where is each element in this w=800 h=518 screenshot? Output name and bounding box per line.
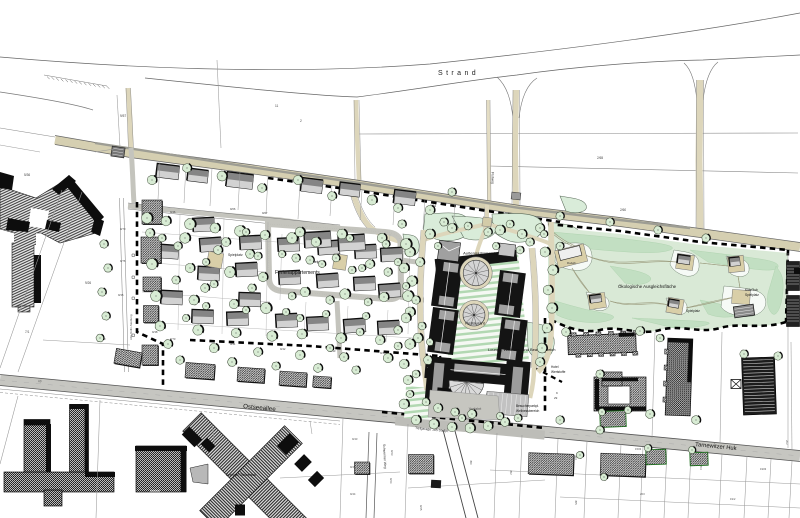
svg-text:19/2: 19/2 xyxy=(730,497,736,501)
svg-text:9/46: 9/46 xyxy=(170,210,176,214)
svg-text:Ferienappartements: Ferienappartements xyxy=(275,270,320,276)
svg-text:9/63: 9/63 xyxy=(390,450,394,456)
svg-text:2/65: 2/65 xyxy=(597,156,603,160)
svg-text:Flutweg: Flutweg xyxy=(491,172,495,184)
svg-text:2: 2 xyxy=(300,119,302,123)
svg-text:Restaurant: Restaurant xyxy=(465,321,485,326)
svg-text:202: 202 xyxy=(785,440,789,445)
svg-text:1503: 1503 xyxy=(635,447,642,451)
svg-text:9/43: 9/43 xyxy=(352,437,358,441)
svg-text:Außengastronomie: Außengastronomie xyxy=(463,251,498,256)
svg-text:9/65: 9/65 xyxy=(419,505,423,511)
svg-text:Ökologische Ausgleichsfläche: Ökologische Ausgleichsfläche xyxy=(618,284,677,289)
svg-text:Rodelb.: Rodelb. xyxy=(567,261,577,265)
svg-text:Spielplatz: Spielplatz xyxy=(745,293,759,297)
svg-text:Wertstoffe: Wertstoffe xyxy=(551,370,566,374)
svg-text:9/44: 9/44 xyxy=(350,492,356,496)
svg-text:455: 455 xyxy=(574,500,578,505)
svg-text:1903: 1903 xyxy=(760,467,767,471)
svg-text:Spielplatz: Spielplatz xyxy=(686,309,700,313)
svg-text:9/57: 9/57 xyxy=(120,114,126,118)
svg-text:5/36: 5/36 xyxy=(24,173,30,177)
svg-text:29: 29 xyxy=(554,396,558,400)
svg-text:9/70: 9/70 xyxy=(120,227,126,231)
svg-text:9/35: 9/35 xyxy=(118,293,124,297)
svg-text:Alte-Kölln-Siedlung: Alte-Kölln-Siedlung xyxy=(129,314,133,340)
svg-text:7/1: 7/1 xyxy=(25,330,30,334)
svg-text:2/60: 2/60 xyxy=(620,208,626,212)
svg-text:Strand: Strand xyxy=(438,70,479,77)
svg-text:Wellnessbereich: Wellnessbereich xyxy=(516,409,540,413)
svg-text:9/42: 9/42 xyxy=(280,347,286,351)
svg-text:9/76: 9/76 xyxy=(120,259,126,263)
svg-text:Spielplatz: Spielplatz xyxy=(228,253,243,257)
svg-text:Besucherparkpl.: Besucherparkpl. xyxy=(516,404,539,408)
svg-text:450: 450 xyxy=(469,460,473,465)
svg-text:11: 11 xyxy=(275,104,279,108)
svg-text:9/67: 9/67 xyxy=(262,211,268,215)
svg-text:203: 203 xyxy=(640,492,645,496)
svg-text:9/26: 9/26 xyxy=(85,281,91,285)
svg-text:452: 452 xyxy=(509,470,513,475)
svg-text:9/38: 9/38 xyxy=(152,330,158,334)
svg-text:KidsClub: KidsClub xyxy=(745,288,758,292)
svg-text:9/66: 9/66 xyxy=(230,207,236,211)
svg-text:Hotel: Hotel xyxy=(551,365,559,369)
svg-text:Seehotel Ostseeblick: Seehotel Ostseeblick xyxy=(226,473,256,477)
svg-text:9/41: 9/41 xyxy=(230,342,236,346)
svg-text:9/64: 9/64 xyxy=(389,478,393,484)
